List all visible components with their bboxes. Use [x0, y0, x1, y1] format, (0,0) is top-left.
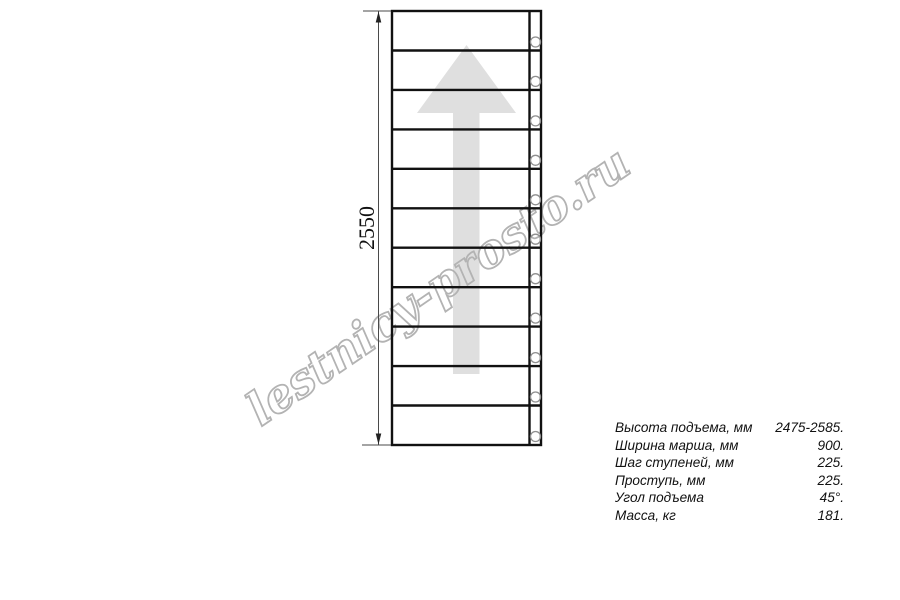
spec-value: 45°.: [820, 489, 844, 507]
spec-label: Ширина марша, мм: [615, 437, 739, 455]
spec-value: 225.: [818, 472, 844, 490]
dimension-arrow-up-icon: [376, 12, 382, 23]
spec-label: Масса, кг: [615, 507, 676, 525]
spec-label: Проступь, мм: [615, 472, 705, 490]
bolt-circle: [531, 37, 541, 47]
spec-label: Угол подъема: [615, 489, 704, 507]
page: lestnicy-prosto.ru: [0, 0, 900, 600]
specs-row: Угол подъема 45°.: [615, 489, 844, 507]
spec-value: 225.: [818, 454, 844, 472]
bolt-circle: [531, 76, 541, 86]
watermark-text: lestnicy-prosto.ru: [236, 136, 639, 437]
bolt-circle: [531, 353, 541, 363]
specs-row: Масса, кг 181.: [615, 507, 844, 525]
bolt-circle: [531, 274, 541, 284]
spec-value: 181.: [818, 507, 844, 525]
specs-row: Высота подъема, мм 2475-2585.: [615, 419, 844, 437]
bolt-circle: [531, 155, 541, 165]
spec-label: Высота подъема, мм: [615, 419, 752, 437]
dimension-value: 2550: [354, 206, 379, 250]
bolt-circle: [531, 392, 541, 402]
spec-value: 2475-2585.: [775, 419, 844, 437]
dimension-arrow-down-icon: [376, 434, 382, 445]
specs-table: Высота подъема, мм 2475-2585. Ширина мар…: [615, 419, 844, 524]
specs-row: Шаг ступеней, мм 225.: [615, 454, 844, 472]
spec-value: 900.: [818, 437, 844, 455]
spec-label: Шаг ступеней, мм: [615, 454, 734, 472]
bolt-circle: [531, 116, 541, 126]
bolt-circle: [531, 313, 541, 323]
bolt-circle: [531, 432, 541, 442]
specs-row: Ширина марша, мм 900.: [615, 437, 844, 455]
specs-row: Проступь, мм 225.: [615, 472, 844, 490]
